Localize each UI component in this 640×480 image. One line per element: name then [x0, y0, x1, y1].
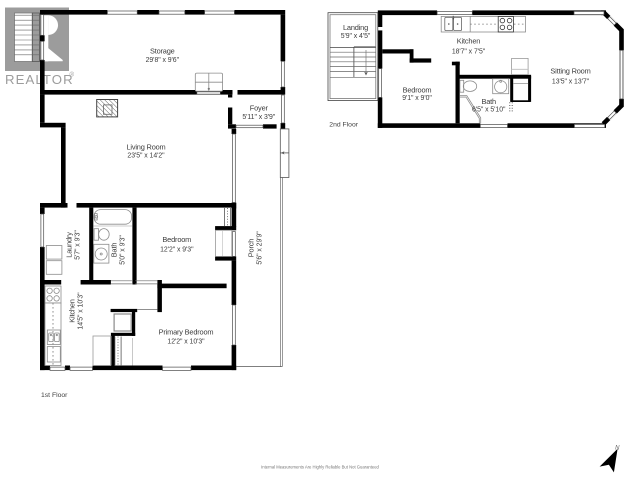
svg-text:Bedroom: Bedroom	[162, 235, 191, 244]
svg-text:5'9" x 4'5": 5'9" x 4'5"	[341, 33, 371, 40]
svg-text:Kitchen: Kitchen	[457, 37, 480, 46]
svg-text:13'5" x 13'7": 13'5" x 13'7"	[552, 79, 590, 86]
svg-text:®: ®	[70, 72, 75, 79]
svg-text:Porch: Porch	[247, 239, 256, 257]
svg-text:Living Room: Living Room	[126, 143, 165, 152]
svg-text:Landing: Landing	[343, 23, 368, 32]
svg-text:23'5" x 14'2": 23'5" x 14'2"	[127, 152, 165, 159]
svg-text:Bath: Bath	[110, 243, 119, 258]
svg-text:5'0" x 9'3": 5'0" x 9'3"	[120, 235, 127, 265]
svg-text:9'1" x 9'0": 9'1" x 9'0"	[402, 95, 432, 102]
svg-text:Storage: Storage	[150, 47, 175, 56]
svg-text:2nd Floor: 2nd Floor	[329, 121, 358, 128]
svg-text:Laundry: Laundry	[65, 232, 74, 258]
svg-text:1st Floor: 1st Floor	[41, 392, 68, 399]
svg-text:18'7" x 7'5": 18'7" x 7'5"	[452, 49, 486, 56]
svg-text:Primary Bedroom: Primary Bedroom	[159, 328, 214, 337]
svg-text:14'5" x 10'3": 14'5" x 10'3"	[78, 292, 85, 330]
svg-text:Sitting Room: Sitting Room	[550, 67, 590, 76]
svg-text:Bedroom: Bedroom	[403, 86, 432, 95]
svg-text:12'2" x 9'3": 12'2" x 9'3"	[160, 247, 194, 254]
svg-text:REALTOR: REALTOR	[5, 72, 74, 87]
svg-text:Internal Measurements Are High: Internal Measurements Are Highly Reliabl…	[261, 465, 379, 470]
svg-text:5'7" x 9'3": 5'7" x 9'3"	[75, 230, 82, 260]
svg-text:5'6" x 29'9": 5'6" x 29'9"	[257, 231, 264, 265]
svg-text:5'11" x 3'9": 5'11" x 3'9"	[242, 114, 275, 121]
svg-text:Bath: Bath	[481, 97, 496, 106]
svg-text:Foyer: Foyer	[250, 104, 269, 113]
svg-text:12'2" x 10'3": 12'2" x 10'3"	[167, 339, 205, 346]
svg-text:6'5" x 5'10": 6'5" x 5'10"	[472, 107, 506, 114]
svg-text:N: N	[615, 445, 620, 451]
svg-text:Kitchen: Kitchen	[68, 299, 77, 322]
svg-text:29'8" x 9'6": 29'8" x 9'6"	[146, 57, 180, 64]
